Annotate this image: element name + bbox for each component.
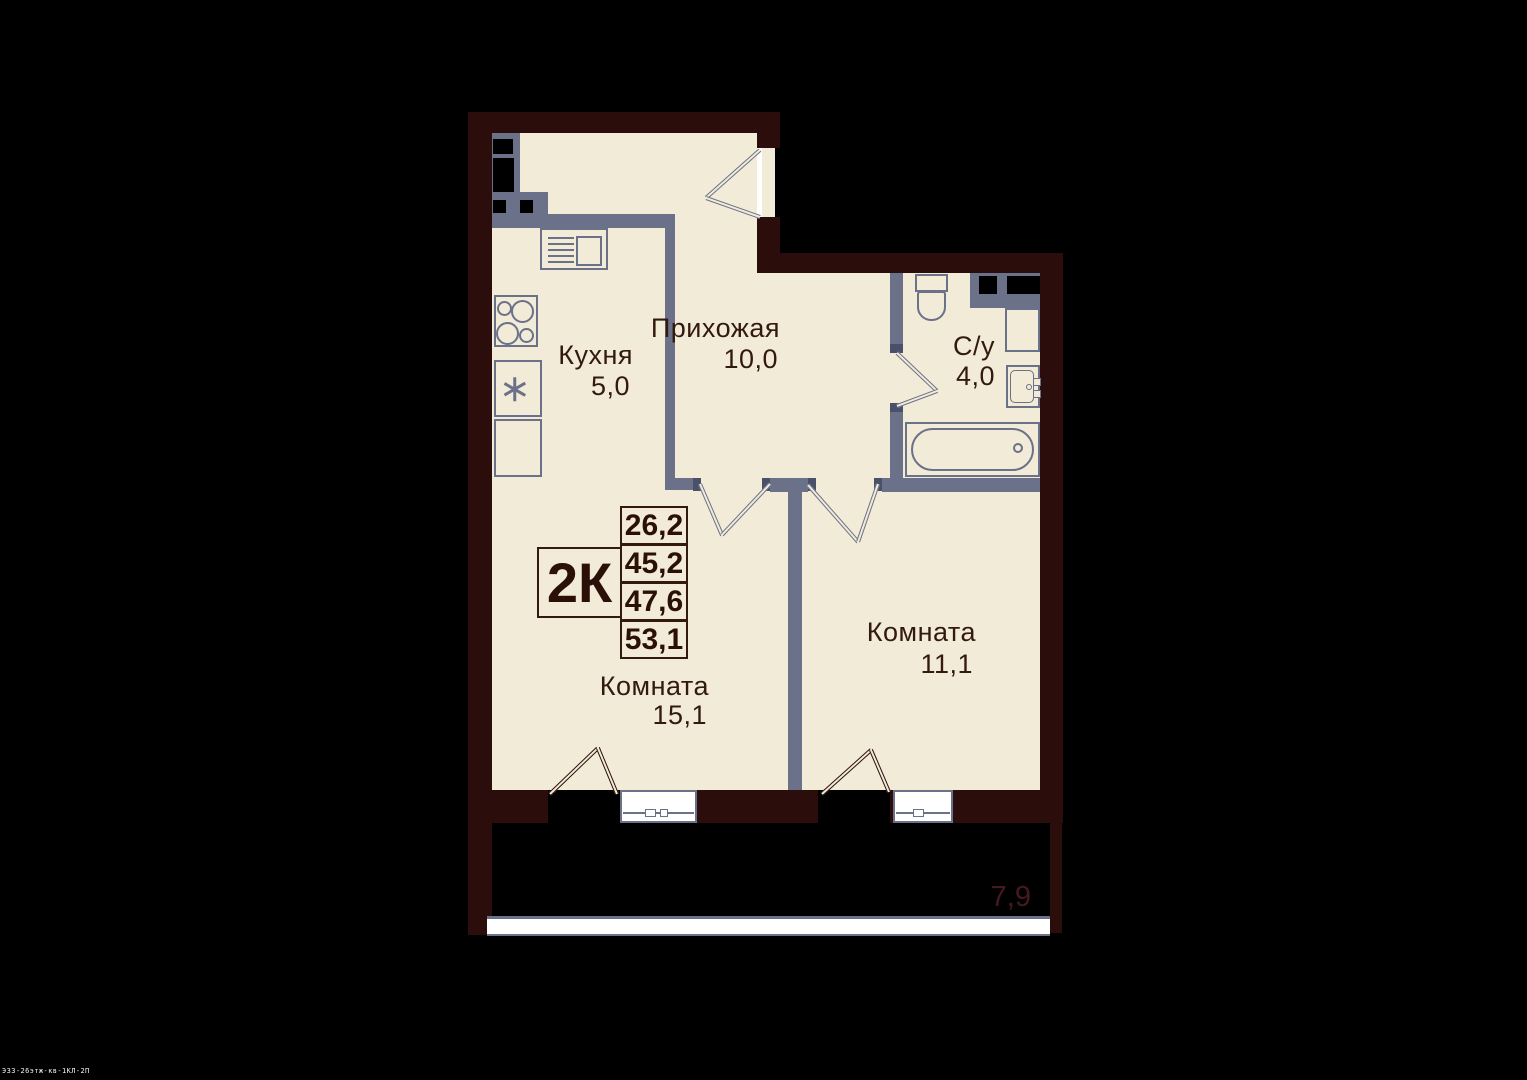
area-box-4: 53,1 (620, 620, 688, 659)
unit-type-box: 2К (537, 547, 622, 618)
wall-entry-jamb-top (757, 133, 780, 148)
washing-machine (1005, 308, 1040, 352)
area-value-1: 26,2 (625, 509, 683, 543)
stove-burner-1 (497, 301, 512, 316)
balcony-door-opening-2 (818, 790, 890, 823)
area-value-3: 47,6 (625, 585, 683, 619)
window-room2 (893, 790, 953, 823)
wall-hall-bottom-left (665, 478, 693, 490)
label-bathroom-name: С/у (905, 331, 995, 362)
label-room2-area: 11,1 (832, 649, 973, 680)
shaft-opening-5 (979, 276, 997, 294)
wall-center-block (770, 478, 808, 492)
label-kitchen-name: Кухня (505, 340, 633, 371)
toilet-tank (915, 274, 948, 292)
wall-top (468, 112, 780, 133)
wall-bath-bottom (882, 478, 1040, 492)
wall-right (1040, 253, 1063, 823)
area-value-4: 53,1 (625, 623, 683, 657)
wall-entry-jamb-bottom (757, 217, 780, 253)
label-room2-name: Комната (832, 617, 976, 648)
kitchen-sink-drainer (548, 237, 574, 263)
floor-plan-canvas: 2К 26,2 45,2 47,6 53,1 Кухня 5,0 Прихожа… (0, 0, 1527, 1080)
shaft-opening-2 (493, 158, 514, 192)
entry-opening-strip (757, 148, 762, 217)
wall-bath-left-lower (890, 403, 903, 490)
shaft-opening-1 (493, 139, 513, 154)
window-room1 (620, 790, 697, 823)
toilet-bowl (917, 291, 946, 321)
window-room1-vent (645, 809, 656, 817)
area-box-1: 26,2 (620, 506, 688, 545)
kitchen-counter-lower (494, 419, 542, 477)
label-bathroom-area: 4,0 (905, 361, 995, 392)
wall-left (468, 112, 492, 823)
balcony-railing (487, 916, 1050, 936)
shaft-opening-6 (1007, 276, 1040, 294)
wall-upper-right (757, 253, 1063, 273)
label-hallway-area: 10,0 (650, 344, 778, 375)
area-value-2: 45,2 (625, 547, 683, 581)
label-room1-area: 15,1 (565, 700, 707, 731)
watermark-text: ЭЗЗ-26этж-кв-1КЛ-2П (2, 1067, 90, 1075)
kitchen-sink-basin (576, 236, 602, 266)
faucet-icon-2 (1033, 390, 1041, 398)
wall-between-rooms (788, 492, 802, 790)
label-balcony-area: 7,9 (975, 881, 1031, 914)
window-room1-vent2 (660, 809, 668, 817)
stove-burner-2 (511, 300, 534, 323)
label-kitchen-area: 5,0 (505, 371, 630, 402)
wall-bath-left-upper (890, 273, 903, 352)
label-hallway-name: Прихожая (650, 313, 780, 344)
unit-type-label: 2К (547, 550, 612, 615)
area-box-3: 47,6 (620, 582, 688, 621)
area-box-2: 45,2 (620, 544, 688, 583)
label-room1-name: Комната (565, 671, 709, 702)
balcony-door-opening-1 (548, 790, 620, 823)
wall-balcony-right (1050, 823, 1062, 933)
faucet-icon (1033, 378, 1041, 386)
faucet-dot (1026, 384, 1032, 390)
shaft-opening-3 (493, 200, 506, 213)
shaft-opening-4 (520, 200, 533, 213)
window-room2-vent (913, 809, 924, 817)
bathtub-drain (1013, 443, 1023, 453)
window-room1-sill (623, 812, 694, 814)
